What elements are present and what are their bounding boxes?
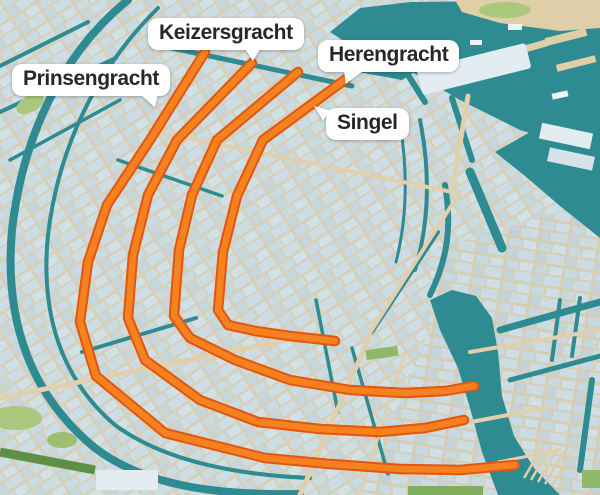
museum-building: [96, 470, 158, 490]
map-figure: Prinsengracht Keizersgracht Herengracht …: [0, 0, 600, 495]
park-southwest-2: [47, 432, 77, 448]
boat-1: [508, 24, 522, 30]
ij-bank-park: [479, 2, 531, 18]
park-southeast-corner: [582, 470, 600, 488]
park-south-strip: [408, 486, 483, 495]
boat-2: [470, 40, 482, 45]
city-map-canvas: [0, 0, 600, 495]
